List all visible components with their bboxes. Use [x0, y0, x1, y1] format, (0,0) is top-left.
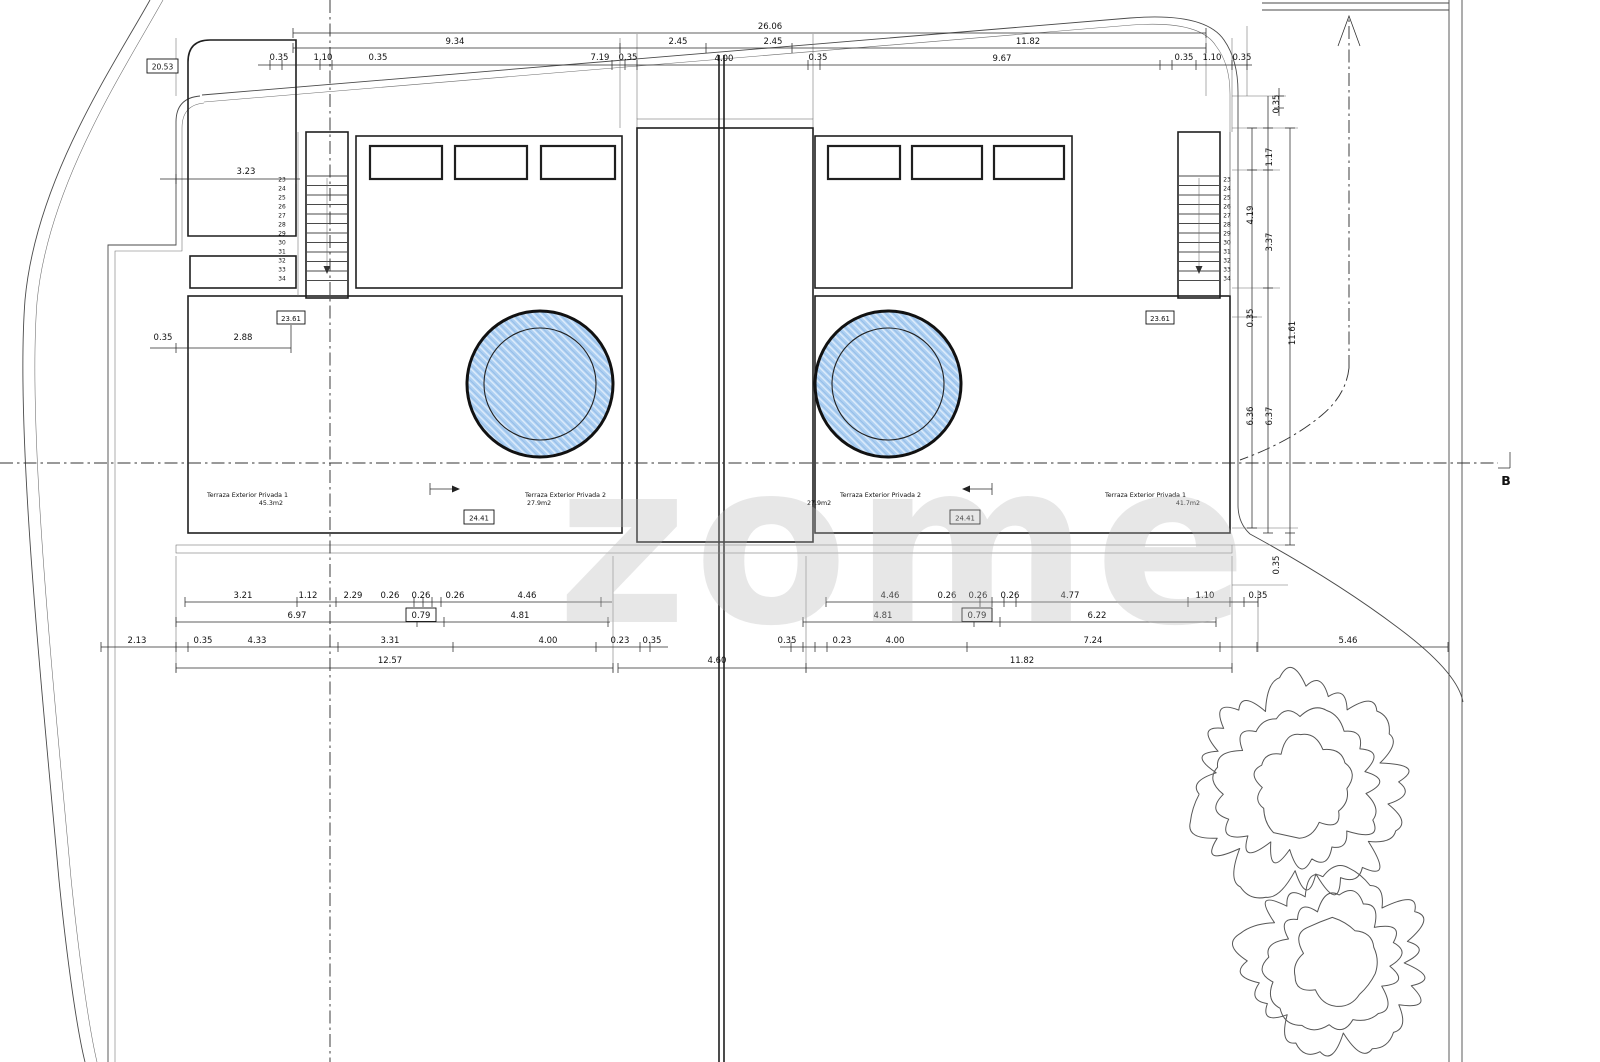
level-value: 23.61 — [281, 315, 301, 323]
dim: 4.00 — [539, 636, 558, 646]
terrace-area: 45.3m2 — [259, 500, 283, 507]
site-plan-drawing: B 26.06 9.34 2.45 2.45 11.82 0.35 1.10 0… — [0, 0, 1600, 1062]
dim: 2.88 — [234, 333, 253, 343]
dim: 0.35 — [194, 636, 213, 646]
door-arrow-left — [430, 483, 460, 495]
dim: 3.23 — [237, 167, 256, 177]
skylight — [912, 146, 982, 179]
dim: 2.13 — [128, 636, 147, 646]
stair-step: 28 — [1223, 223, 1231, 229]
roof-garden-right — [815, 136, 1072, 288]
stair-step: 25 — [278, 196, 286, 202]
dimensions-top: 26.06 9.34 2.45 2.45 11.82 0.35 1.10 0.3… — [258, 22, 1252, 70]
skylight — [455, 146, 527, 179]
skylight — [541, 146, 615, 179]
stair-step: 25 — [1223, 196, 1231, 202]
dim: 4.00 — [715, 54, 734, 64]
dim: 0.35 — [619, 53, 638, 63]
dim: 3.21 — [234, 591, 253, 601]
stair-step: 31 — [1223, 250, 1231, 256]
stair-step: 26 — [278, 205, 286, 211]
dim: 11.61 — [1288, 321, 1298, 345]
strip-tooth-band — [637, 119, 813, 128]
dim-top-total: 26.06 — [758, 22, 782, 32]
dim: 4.81 — [511, 611, 530, 621]
stair-step: 32 — [1223, 259, 1231, 265]
stair-left — [298, 132, 348, 298]
dim: 3.37 — [1265, 233, 1275, 252]
dim: 6.97 — [288, 611, 307, 621]
trees — [1190, 667, 1425, 1056]
stair-step: 29 — [278, 232, 286, 238]
skylight — [994, 146, 1064, 179]
tree — [1190, 667, 1409, 898]
stair-step: 27 — [278, 214, 286, 220]
dim: 0.35 — [1246, 309, 1256, 328]
stair-arrow-down — [1196, 266, 1203, 274]
stair-step: 29 — [1223, 232, 1231, 238]
dim: 0.26 — [446, 591, 465, 601]
dim: 0.35 — [1272, 556, 1282, 575]
dim: 11.82 — [1016, 37, 1040, 47]
dim: 5.46 — [1339, 636, 1358, 646]
dim: 0.26 — [412, 591, 431, 601]
dim: 4.19 — [1246, 206, 1256, 225]
dim: 0.35 — [1272, 95, 1282, 114]
terrace-area: 27.9m2 — [527, 500, 551, 507]
dim: 0.35 — [369, 53, 388, 63]
plan-canvas: B 26.06 9.34 2.45 2.45 11.82 0.35 1.10 0… — [0, 0, 1600, 1062]
stair-step: 23 — [1223, 178, 1231, 184]
dim: 0.35 — [154, 333, 173, 343]
skylight — [828, 146, 900, 179]
watermark: zome — [557, 414, 1254, 676]
dim: 0.35 — [1175, 53, 1194, 63]
dim: 6.37 — [1265, 407, 1275, 426]
stair-numbers-left: 23 24 25 26 27 28 29 30 31 32 33 34 — [278, 178, 286, 283]
stair-step: 33 — [1223, 268, 1231, 274]
dim: 3.31 — [381, 636, 400, 646]
stair-step: 33 — [278, 268, 286, 274]
dim: 9.67 — [993, 54, 1012, 64]
dim: 2.45 — [764, 37, 783, 47]
dim: 1.10 — [314, 53, 333, 63]
dim: 0.26 — [381, 591, 400, 601]
stair-step: 27 — [1223, 214, 1231, 220]
dimensions-left: 20.53 3.23 0.35 2.88 — [147, 59, 300, 353]
tree — [1232, 865, 1424, 1056]
stair-step: 30 — [1223, 241, 1231, 247]
dim: 0.79 — [412, 611, 431, 621]
stair-step: 34 — [1223, 277, 1231, 283]
dim: 2.45 — [669, 37, 688, 47]
stair-right — [1178, 132, 1230, 298]
terrace-label: Terraza Exterior Privada 1 — [206, 492, 288, 499]
dim: 7.19 — [591, 53, 610, 63]
stair-step: 24 — [278, 187, 286, 193]
stair-arrow-down — [324, 266, 331, 274]
stair-step: 31 — [278, 250, 286, 256]
stair-step: 24 — [1223, 187, 1231, 193]
dim: 2.29 — [344, 591, 363, 601]
roof-garden-left — [356, 136, 622, 288]
dim: 1.12 — [299, 591, 318, 601]
stair-step: 26 — [1223, 205, 1231, 211]
north-arrow — [1240, 16, 1360, 460]
dim: 1.17 — [1265, 148, 1275, 167]
stair-step: 32 — [278, 259, 286, 265]
level-value: 23.61 — [1150, 315, 1170, 323]
dim: 12.57 — [378, 656, 402, 666]
level-value: 24.41 — [469, 515, 489, 523]
dim: 1.10 — [1203, 53, 1222, 63]
stair-step: 28 — [278, 223, 286, 229]
site-boundary — [23, 0, 163, 1062]
dim: 0.35 — [270, 53, 289, 63]
dim: 0.35 — [1233, 53, 1252, 63]
dim: 9.34 — [446, 37, 465, 47]
stair-step: 34 — [278, 277, 286, 283]
section-marker: B — [1501, 473, 1511, 488]
skylight — [370, 146, 442, 179]
dim: 4.33 — [248, 636, 267, 646]
stair-step: 30 — [278, 241, 286, 247]
dim: 4.46 — [518, 591, 537, 601]
dim: 0.35 — [809, 53, 828, 63]
dim-boundary: 20.53 — [152, 63, 174, 72]
stair-step: 23 — [278, 178, 286, 184]
